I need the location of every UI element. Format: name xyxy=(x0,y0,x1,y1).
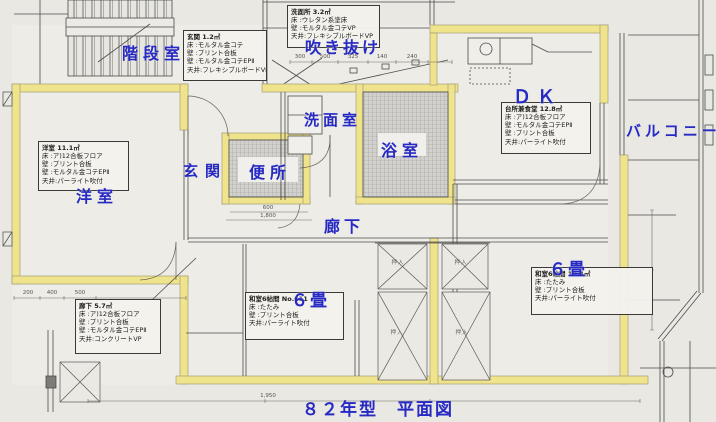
room-label-bathroom: 浴室 xyxy=(381,137,423,161)
spec-title: 玄関 1.2㎡ xyxy=(187,33,263,41)
dimension-text: 500 xyxy=(75,290,86,296)
dimension-text: 140 xyxy=(377,54,388,60)
dimension-text: 1,950 xyxy=(260,393,276,399)
plan-drawing xyxy=(0,0,716,422)
spec-box-corridor: 廊下 5.7㎡ 床 :ア)12合板フロア 壁 :プリント合板 壁 :モルタル金コ… xyxy=(75,299,161,354)
room-label-stairwell: 階段室 xyxy=(122,40,185,64)
closet-label: 押入 xyxy=(455,328,468,336)
balcony-lines xyxy=(628,0,716,422)
dimension-text: 325 xyxy=(348,54,359,60)
room-label-toilet: 便所 xyxy=(249,159,291,183)
dimension-text: 400 xyxy=(47,290,58,296)
dimension-text: 500 xyxy=(320,54,331,60)
closet-label: 押入 xyxy=(390,328,403,336)
dimension-text: 300 xyxy=(295,54,306,60)
closet-label: 押入 xyxy=(391,258,404,266)
room-label-balcony: バルコニー xyxy=(626,120,716,141)
wall-break-marks xyxy=(3,92,12,246)
spec-title: 洗面所 3.2㎡ xyxy=(291,8,376,16)
dimension-text: 240 xyxy=(407,54,418,60)
room-label-dk: ＤＫ xyxy=(513,83,561,109)
spec-box-entrance: 玄関 1.2㎡ 床 :モルタル金コテ 壁 :プリント合板 壁 :モルタル金コテE… xyxy=(183,30,267,81)
room-label-six-mat-center: ６畳 xyxy=(291,286,329,311)
floor-plan-sheet: 玄関 1.2㎡ 床 :モルタル金コテ 壁 :プリント合板 壁 :モルタル金コテE… xyxy=(0,0,716,422)
room-label-washroom: 洗面室 xyxy=(304,109,361,130)
spec-title: 廊下 5.7㎡ xyxy=(79,302,157,310)
room-label-western-room: 洋室 xyxy=(76,183,118,207)
room-label-corridor: 廊下 xyxy=(324,213,364,237)
dimension-text: 1,800 xyxy=(260,213,276,219)
closet-label: 押入 xyxy=(454,258,467,266)
dimension-text: 200 xyxy=(23,290,34,296)
spec-title: 洋室 11.1㎡ xyxy=(42,144,125,152)
room-label-void: 吹き抜け xyxy=(305,34,381,58)
plan-title: ８２年型 平面図 xyxy=(302,395,454,420)
dimension-text: 600 xyxy=(263,205,274,211)
spec-box-dk: 台所兼食堂 12.8㎡ 床 :ア)12合板フロア 壁 :モルタル金コテEPⅡ 壁… xyxy=(501,102,591,154)
room-label-six-mat-right: ６畳 xyxy=(549,255,587,280)
room-label-entrance: 玄関 xyxy=(183,160,227,181)
